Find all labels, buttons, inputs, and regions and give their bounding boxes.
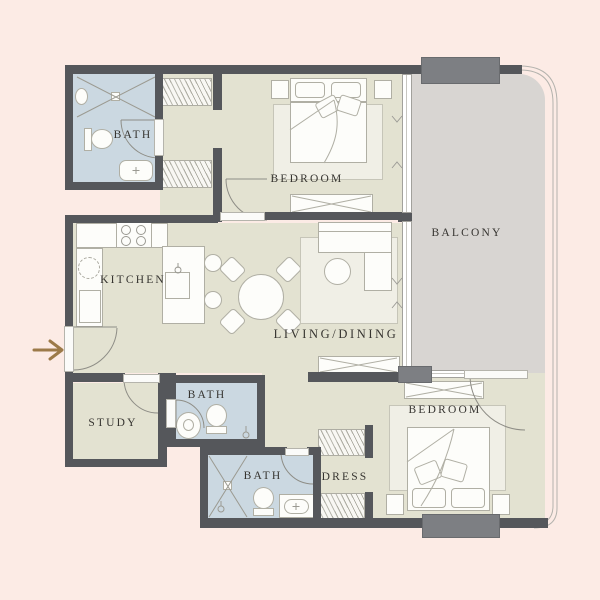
- door-opening: [123, 374, 160, 383]
- shower-tray-icon: [209, 456, 247, 517]
- room-label-bath-top: BATH: [103, 129, 163, 141]
- balcony-railing: [520, 70, 553, 524]
- wall-segment: [158, 439, 265, 447]
- wall-segment: [365, 425, 373, 458]
- door-arc-icon: [124, 379, 158, 413]
- blanket-fold: [407, 429, 454, 506]
- door-arc-icon: [73, 327, 117, 370]
- faucet-icon: [175, 263, 181, 273]
- burner-icon: [122, 226, 146, 246]
- room-label-living-dining: LIVING/DINING: [256, 327, 416, 342]
- wall-segment: [213, 74, 222, 110]
- wall-segment: [263, 212, 407, 220]
- sliding-window: [402, 74, 412, 213]
- slider-chevron-icon: [392, 116, 402, 168]
- window: [430, 370, 466, 378]
- wall-segment: [313, 447, 321, 528]
- wall-segment: [65, 373, 125, 382]
- room-label-bedroom-bottom: BEDROOM: [395, 404, 495, 416]
- wall-segment: [200, 447, 287, 455]
- linework-layer: [0, 0, 600, 600]
- blanket-fold: [290, 100, 337, 163]
- shower-tray-icon: [77, 77, 155, 117]
- wall-segment: [65, 182, 160, 190]
- room-label-balcony: BALCONY: [417, 227, 517, 239]
- door-arc-icon: [176, 400, 204, 428]
- wall-segment: [257, 375, 265, 447]
- sliding-window: [402, 221, 412, 369]
- drain-icon: [293, 503, 300, 510]
- wall-segment: [308, 372, 407, 382]
- entry-arrow-icon: [32, 338, 68, 362]
- wall-segment: [65, 215, 218, 223]
- door-opening: [220, 212, 265, 221]
- floor-plan: BATH BEDROOM BALCONY KITCHEN LIVING/DINI…: [0, 0, 600, 600]
- pillar: [421, 57, 500, 84]
- wall-segment: [65, 215, 73, 327]
- door-opening: [166, 399, 176, 428]
- wall-segment: [65, 459, 167, 467]
- door-opening: [285, 448, 309, 456]
- wall-segment: [213, 148, 222, 222]
- shower-head-icon: [218, 501, 224, 512]
- balcony-railing: [520, 66, 557, 528]
- wall-segment: [65, 65, 73, 190]
- room-label-bath-middle: BATH: [157, 389, 257, 401]
- room-label-study: STUDY: [63, 417, 163, 429]
- pillar: [422, 514, 500, 538]
- slider-chevron-icon: [392, 278, 402, 308]
- wall-segment: [200, 447, 208, 528]
- wall-segment: [155, 155, 163, 190]
- drain-icon: [133, 167, 140, 174]
- faucet-icon: [243, 426, 249, 438]
- wall-segment: [365, 492, 373, 522]
- door-opening: [464, 370, 528, 379]
- bench-x-icon: [292, 196, 371, 212]
- pillar: [398, 366, 432, 383]
- wall-segment: [155, 74, 163, 120]
- wall-segment: [167, 375, 265, 383]
- room-label-kitchen: KITCHEN: [83, 274, 183, 286]
- bench-x-icon: [320, 358, 397, 372]
- room-label-dress: DRESS: [295, 471, 395, 483]
- room-label-bedroom-top: BEDROOM: [257, 173, 357, 185]
